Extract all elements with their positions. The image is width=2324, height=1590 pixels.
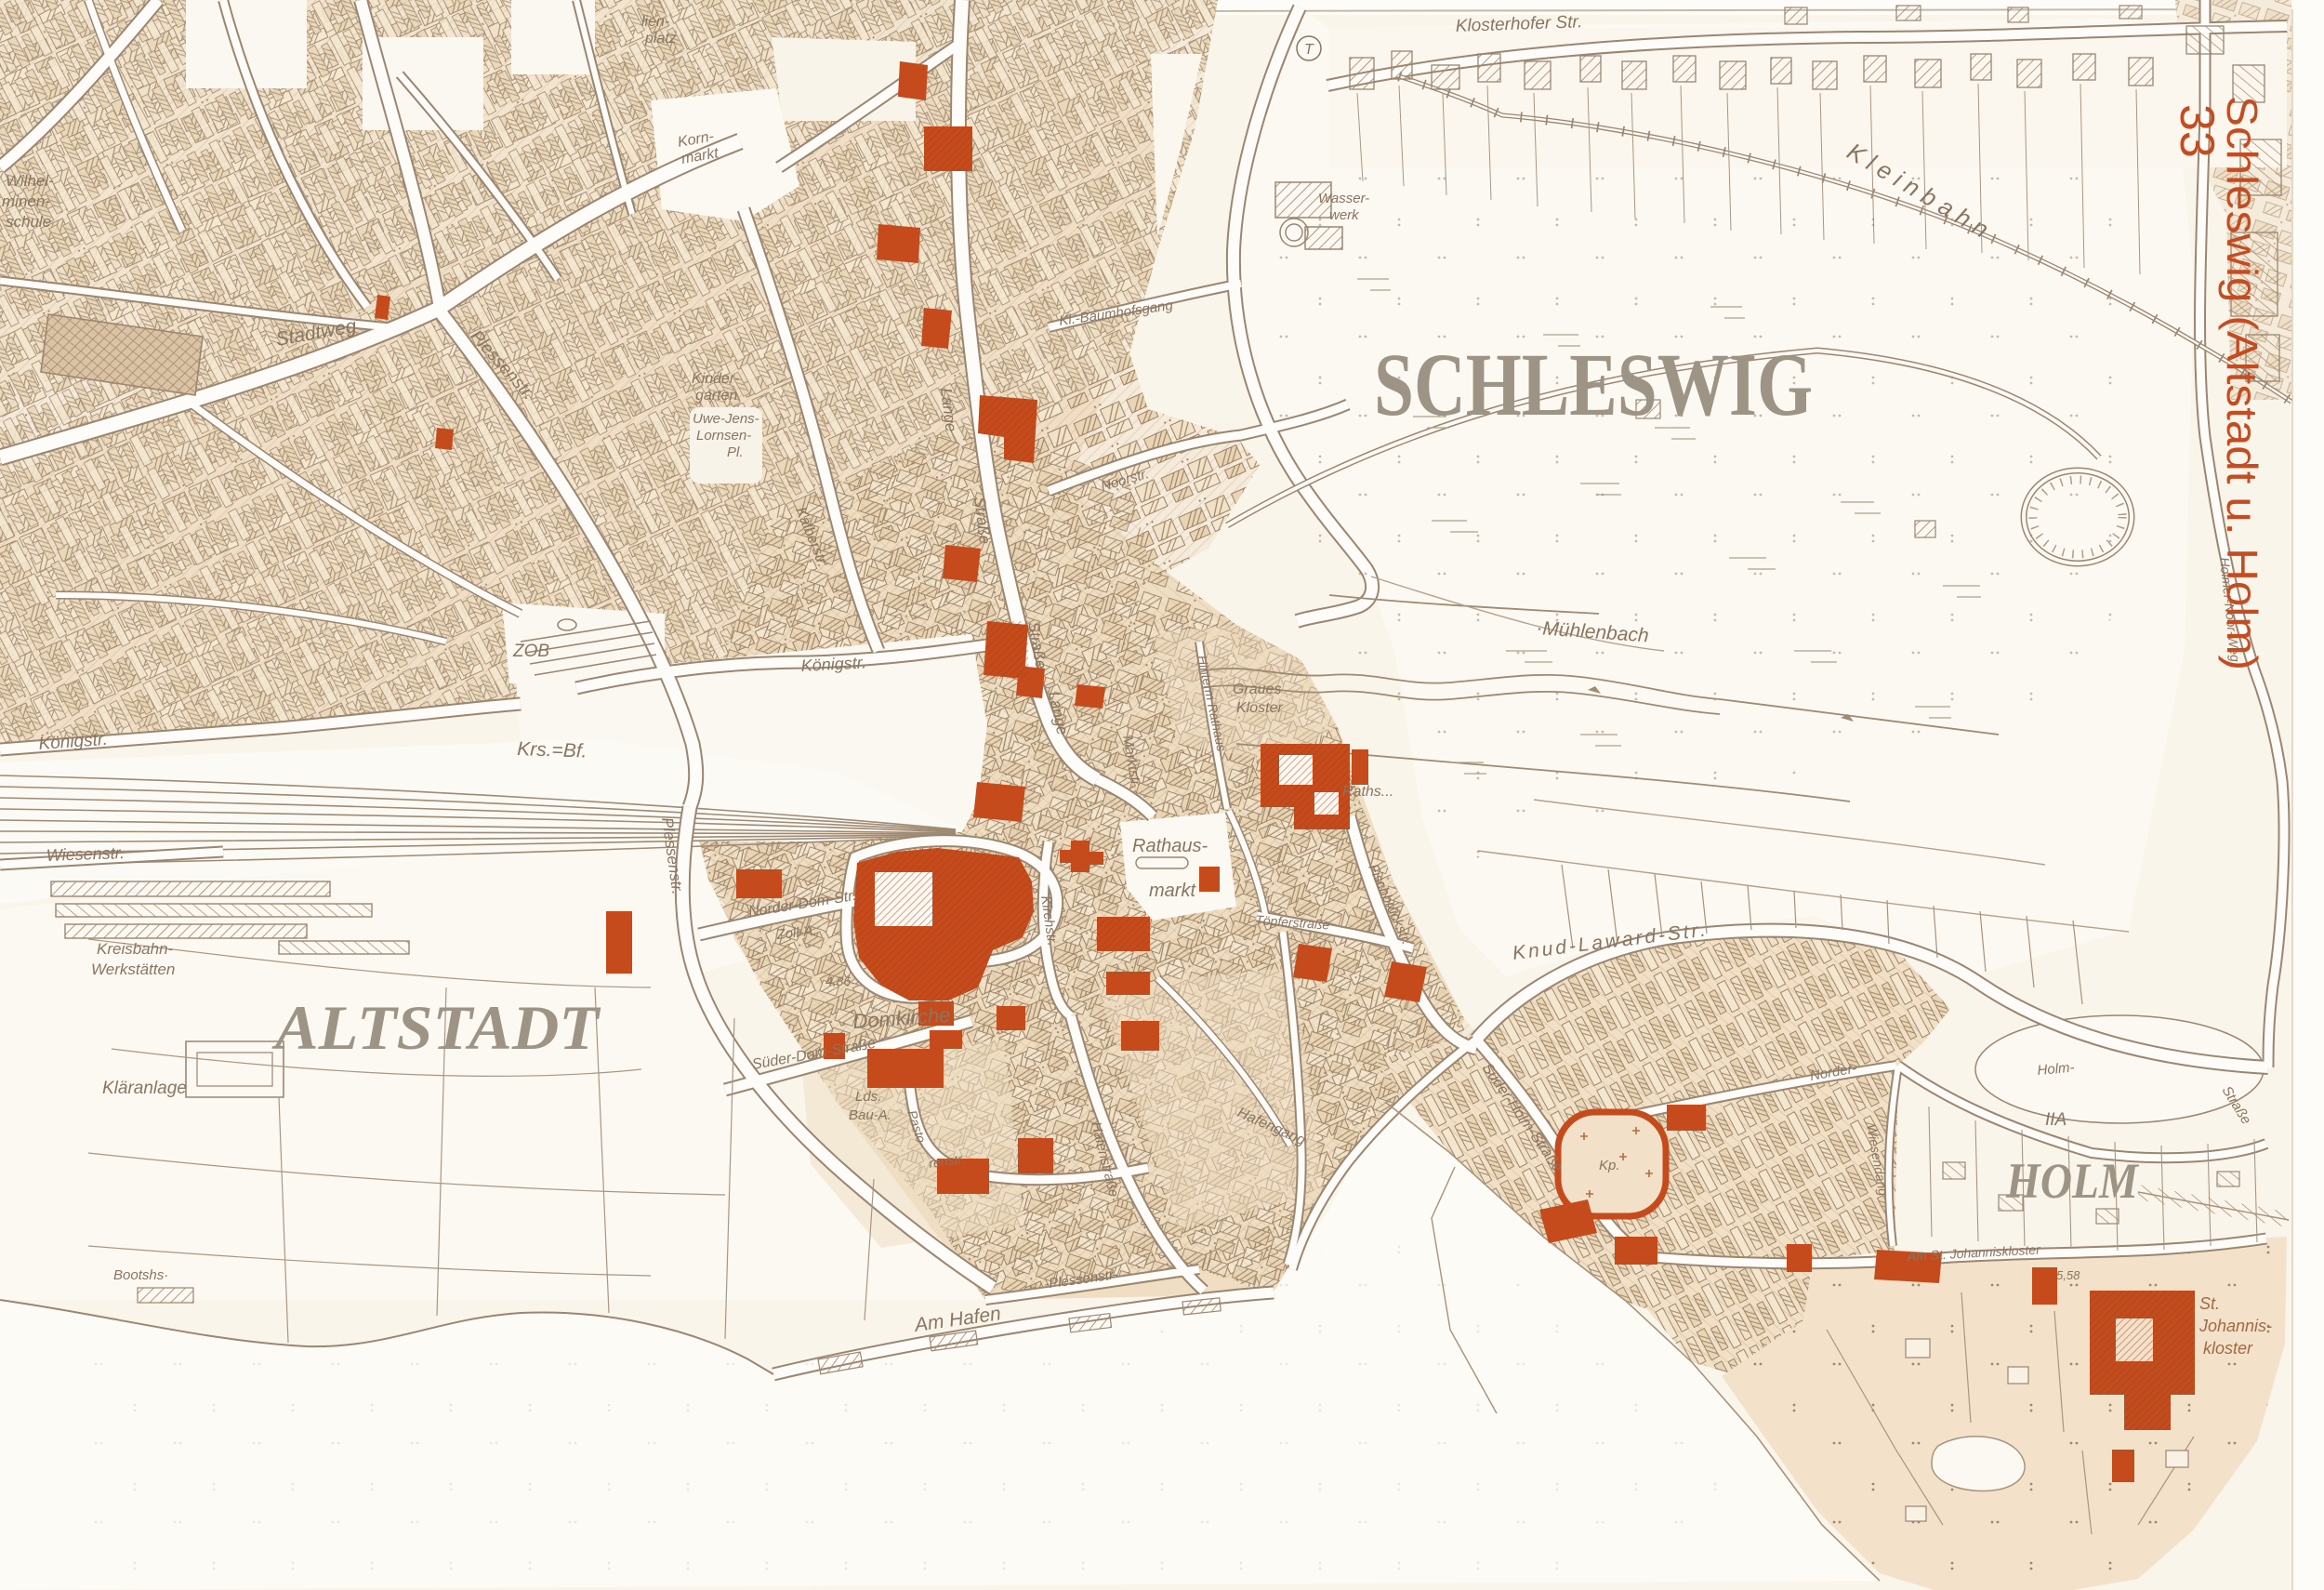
svg-text:Wasser-: Wasser-: [1318, 191, 1369, 206]
svg-text:ZOB: ZOB: [512, 642, 549, 661]
svg-text:Rathaus-: Rathaus-: [1132, 836, 1208, 856]
svg-text:Bau-A.: Bau-A.: [849, 1107, 891, 1123]
svg-text:Bootshs·: Bootshs·: [113, 1267, 168, 1283]
svg-text:HOLM: HOLM: [2005, 1153, 2140, 1209]
svg-text:kloster: kloster: [2203, 1339, 2253, 1358]
svg-text:SCHLESWIG: SCHLESWIG: [1374, 335, 1813, 434]
svg-text:garten: garten: [695, 388, 737, 404]
svg-text:Schleswig (Altstadt u. Holm): Schleswig (Altstadt u. Holm): [2218, 96, 2266, 670]
svg-text:ALTSTADT: ALTSTADT: [271, 992, 601, 1063]
svg-text:Lornsen-: Lornsen-: [696, 428, 751, 444]
svg-text:platz: platz: [644, 31, 677, 46]
svg-text:Kinder-: Kinder-: [692, 371, 739, 387]
svg-text:Holm-: Holm-: [2037, 1060, 2075, 1079]
svg-text:Graues: Graues: [1233, 682, 1281, 697]
svg-text:lien-: lien-: [641, 14, 669, 30]
svg-text:Johannis-: Johannis-: [2199, 1317, 2272, 1335]
svg-text:Krs.=Bf.: Krs.=Bf.: [517, 738, 588, 762]
svg-text:markt: markt: [1149, 881, 1196, 901]
svg-text:Kp.: Kp.: [1599, 1158, 1620, 1173]
svg-text:T: T: [1304, 42, 1314, 58]
svg-text:werk: werk: [1329, 207, 1360, 223]
svg-text:Wiesenstr.: Wiesenstr.: [46, 843, 125, 865]
svg-text:schule: schule: [6, 213, 51, 231]
svg-text:minen-: minen-: [2, 192, 50, 210]
svg-text:Pl.: Pl.: [727, 444, 744, 460]
svg-text:Lds.: Lds.: [855, 1089, 881, 1105]
svg-text:4,86: 4,86: [825, 974, 851, 988]
svg-text:IIA: IIA: [2045, 1110, 2067, 1130]
svg-text:5,58: 5,58: [2056, 1268, 2080, 1282]
svg-text:33: 33: [2170, 104, 2224, 158]
svg-text:Raths...: Raths...: [1342, 784, 1393, 800]
svg-text:St.: St.: [2199, 1294, 2220, 1313]
svg-text:Wilhel-: Wilhel-: [6, 172, 54, 190]
svg-text:Kloster: Kloster: [1236, 700, 1283, 716]
svg-text:Königstr.: Königstr.: [800, 653, 866, 675]
svg-text:Uwe-Jens-: Uwe-Jens-: [693, 411, 759, 427]
svg-text:Kläranlage: Kläranlage: [102, 1079, 187, 1098]
svg-text:Kreisbahn-: Kreisbahn-: [97, 940, 174, 958]
svg-text:Werkstätten: Werkstätten: [91, 961, 175, 978]
